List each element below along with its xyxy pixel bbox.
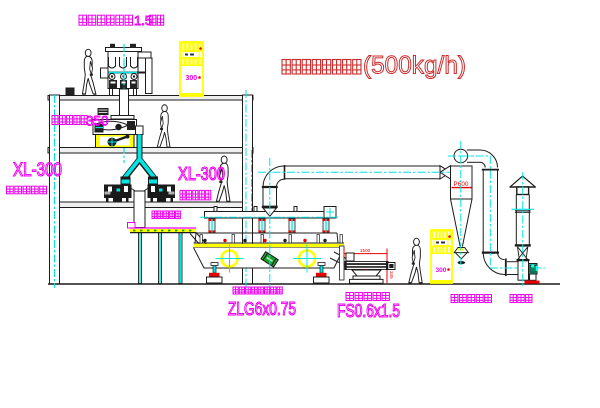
svg-text:1500: 1500 <box>360 248 371 253</box>
svg-text:(500kg/h): (500kg/h) <box>363 52 466 80</box>
svg-text:FS0.6x1.5: FS0.6x1.5 <box>337 301 400 321</box>
svg-text:300: 300 <box>186 75 198 82</box>
svg-text:345: 345 <box>389 271 394 279</box>
svg-text:XL-300: XL-300 <box>13 160 62 181</box>
svg-text:ZLG6x0.75: ZLG6x0.75 <box>228 299 296 319</box>
svg-text:300: 300 <box>436 267 447 274</box>
svg-text:350: 350 <box>86 114 109 129</box>
svg-text:XL-300: XL-300 <box>178 164 225 184</box>
